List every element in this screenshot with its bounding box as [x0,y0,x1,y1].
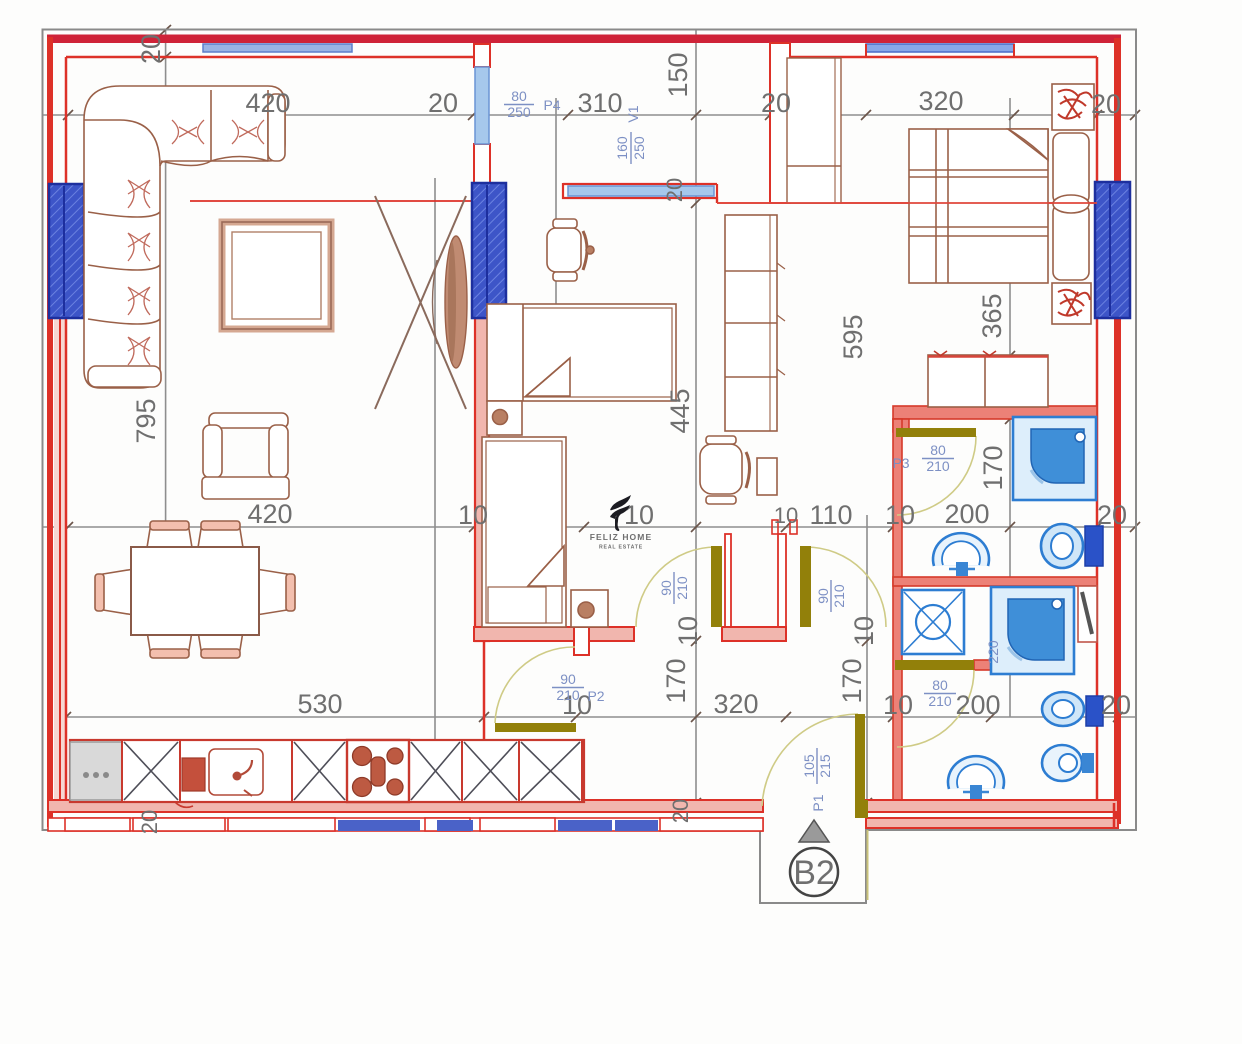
svg-text:200: 200 [944,499,989,529]
svg-text:10: 10 [673,616,703,646]
svg-text:20: 20 [137,810,162,834]
svg-text:320: 320 [713,689,758,719]
svg-text:V1: V1 [625,105,641,122]
svg-text:B2: B2 [793,854,835,892]
svg-text:420: 420 [245,88,290,118]
svg-text:210: 210 [928,693,952,709]
svg-text:220: 220 [985,640,1001,664]
svg-text:105: 105 [801,754,817,778]
svg-text:210: 210 [926,458,950,474]
svg-text:320: 320 [918,86,963,116]
svg-text:20: 20 [1101,690,1131,720]
svg-text:P4: P4 [543,97,560,113]
svg-text:20: 20 [668,799,693,823]
svg-text:10: 10 [885,500,915,530]
svg-text:20: 20 [136,34,166,64]
svg-text:20: 20 [1091,89,1121,119]
svg-text:200: 200 [955,690,1000,720]
svg-text:10: 10 [458,500,488,530]
svg-text:215: 215 [817,754,833,778]
svg-text:530: 530 [297,689,342,719]
svg-text:P2: P2 [587,688,604,704]
svg-text:210: 210 [674,576,690,600]
svg-text:210: 210 [556,687,580,703]
svg-text:20: 20 [428,88,458,118]
svg-text:90: 90 [658,580,674,596]
svg-text:10: 10 [774,503,798,528]
svg-text:20: 20 [761,88,791,118]
svg-text:150: 150 [663,52,693,97]
svg-text:90: 90 [815,588,831,604]
svg-text:160: 160 [614,136,630,160]
svg-text:420: 420 [247,499,292,529]
svg-text:80: 80 [930,442,946,458]
svg-text:REAL ESTATE: REAL ESTATE [599,545,643,551]
svg-text:445: 445 [665,388,695,433]
svg-text:365: 365 [977,293,1007,338]
svg-text:90: 90 [560,671,576,687]
svg-text:10: 10 [849,616,879,646]
svg-text:795: 795 [131,398,161,443]
svg-text:80: 80 [932,677,948,693]
svg-text:80: 80 [511,88,527,104]
svg-text:310: 310 [577,88,622,118]
svg-text:20: 20 [1097,500,1127,530]
svg-text:FELIZ HOME: FELIZ HOME [590,532,652,542]
svg-text:595: 595 [838,314,868,359]
svg-text:10: 10 [883,690,913,720]
svg-text:P3: P3 [892,455,909,471]
svg-text:170: 170 [661,658,691,703]
svg-text:P1: P1 [810,794,826,811]
svg-text:20: 20 [662,178,687,202]
svg-text:10: 10 [624,500,654,530]
svg-text:250: 250 [507,104,531,120]
svg-text:210: 210 [831,584,847,608]
svg-text:110: 110 [809,500,852,530]
svg-text:250: 250 [631,136,647,160]
svg-text:170: 170 [837,658,867,703]
svg-text:170: 170 [978,445,1008,490]
